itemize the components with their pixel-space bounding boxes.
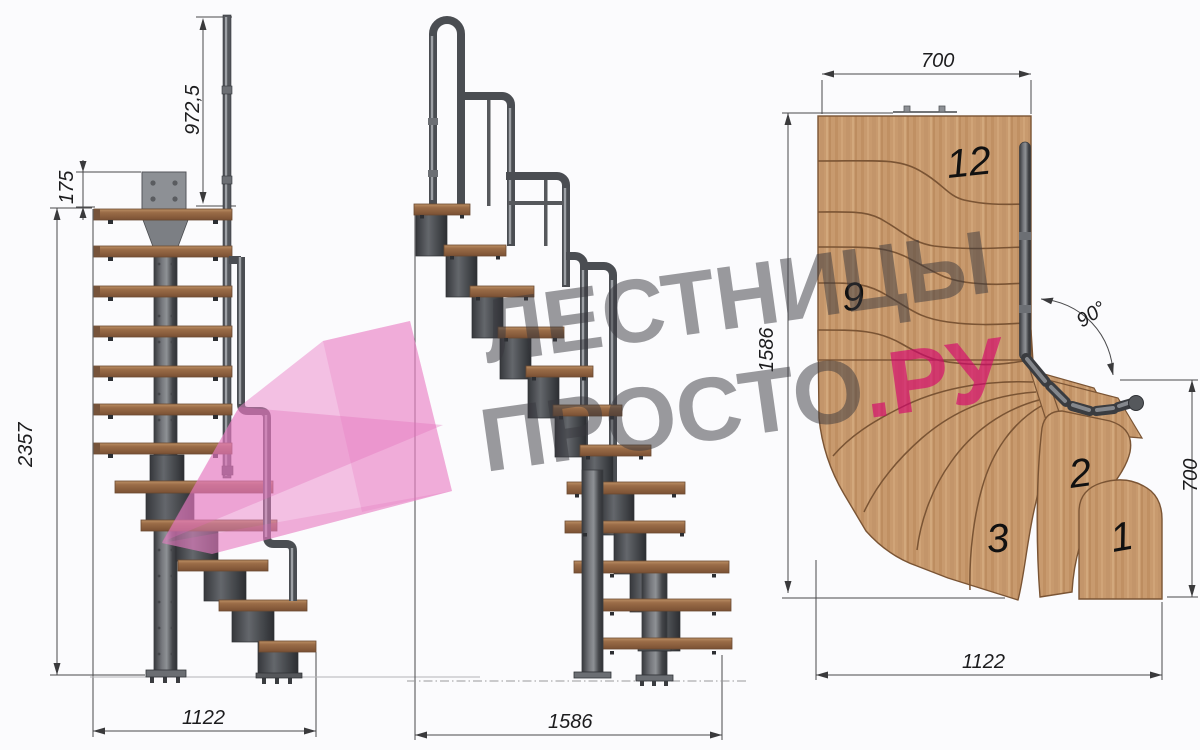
svg-text:1122: 1122: [962, 651, 1005, 673]
svg-text:175: 175: [56, 170, 78, 204]
svg-text:2357: 2357: [15, 422, 37, 468]
svg-text:12: 12: [944, 139, 993, 187]
svg-text:700: 700: [1180, 459, 1200, 492]
svg-text:700: 700: [921, 50, 954, 72]
svg-text:3: 3: [984, 516, 1011, 562]
svg-text:972,5: 972,5: [182, 84, 204, 135]
svg-text:1122: 1122: [182, 707, 225, 729]
svg-text:1586: 1586: [548, 711, 593, 733]
